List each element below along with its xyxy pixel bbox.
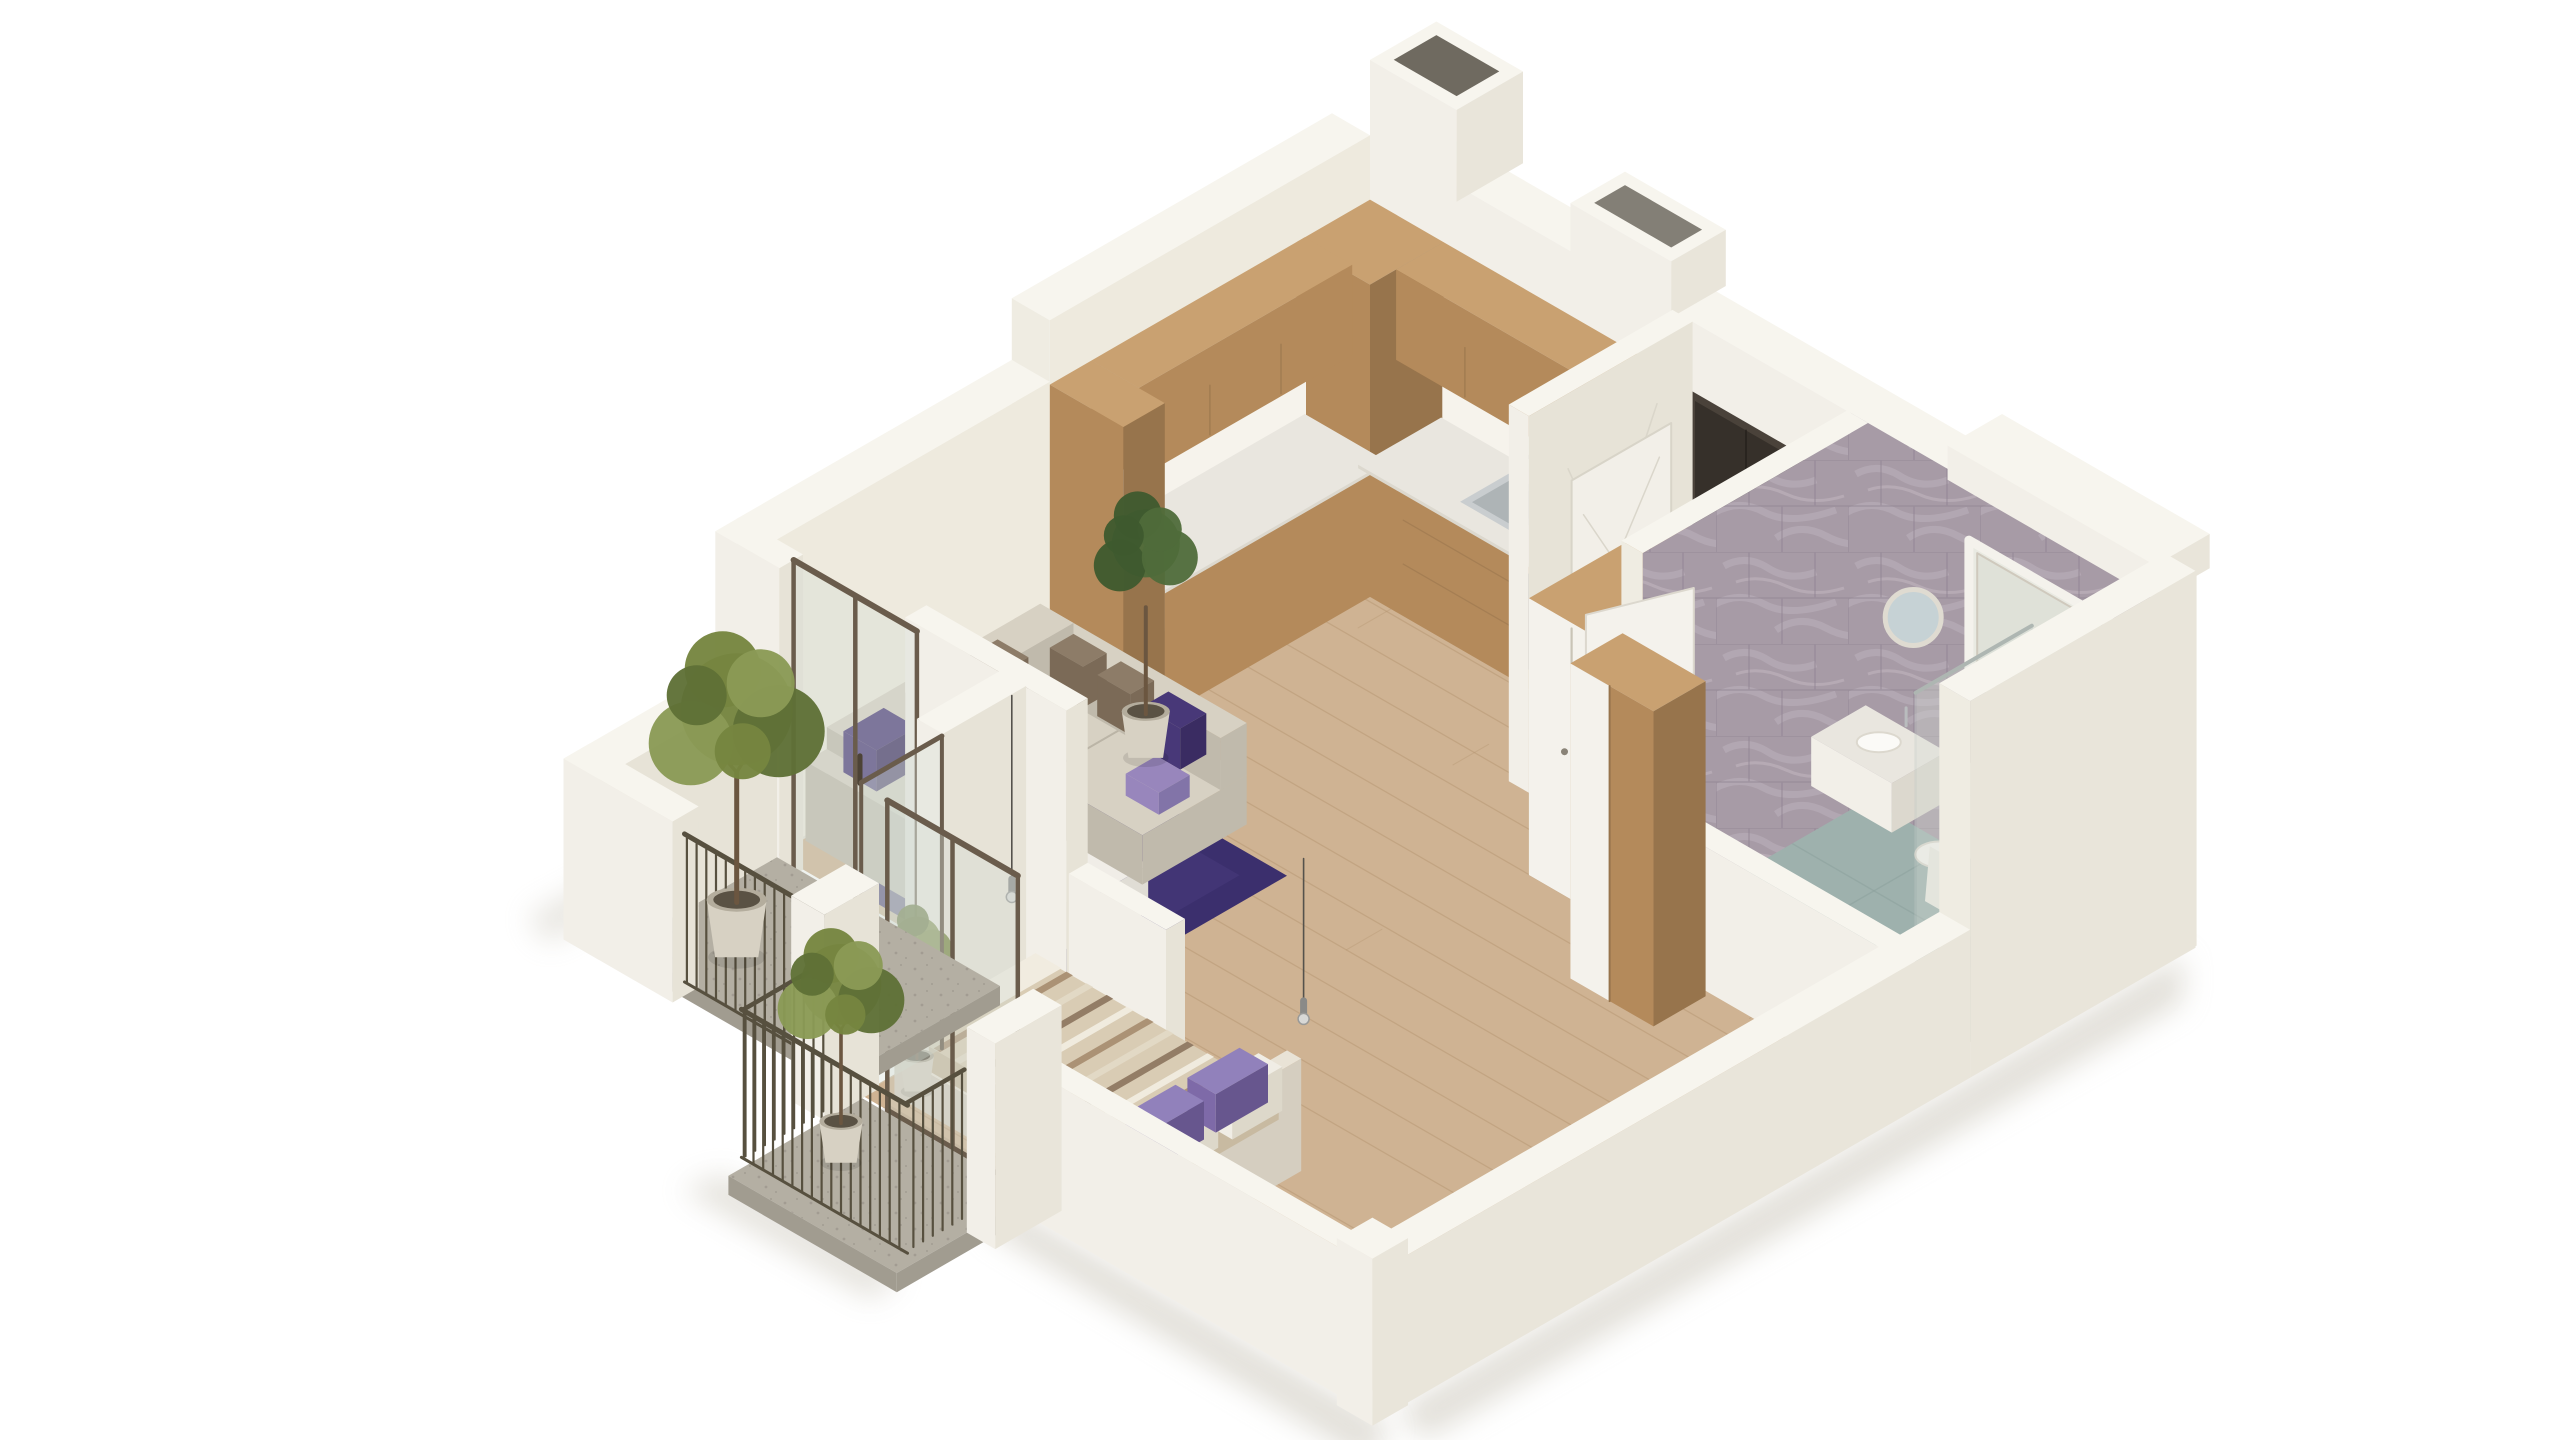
render-canvas [0,0,2560,1440]
apartment-3d-floorplan [0,0,2560,1440]
bedroom-closet [1570,633,1705,1026]
bathroom-mirror [1885,590,1941,646]
